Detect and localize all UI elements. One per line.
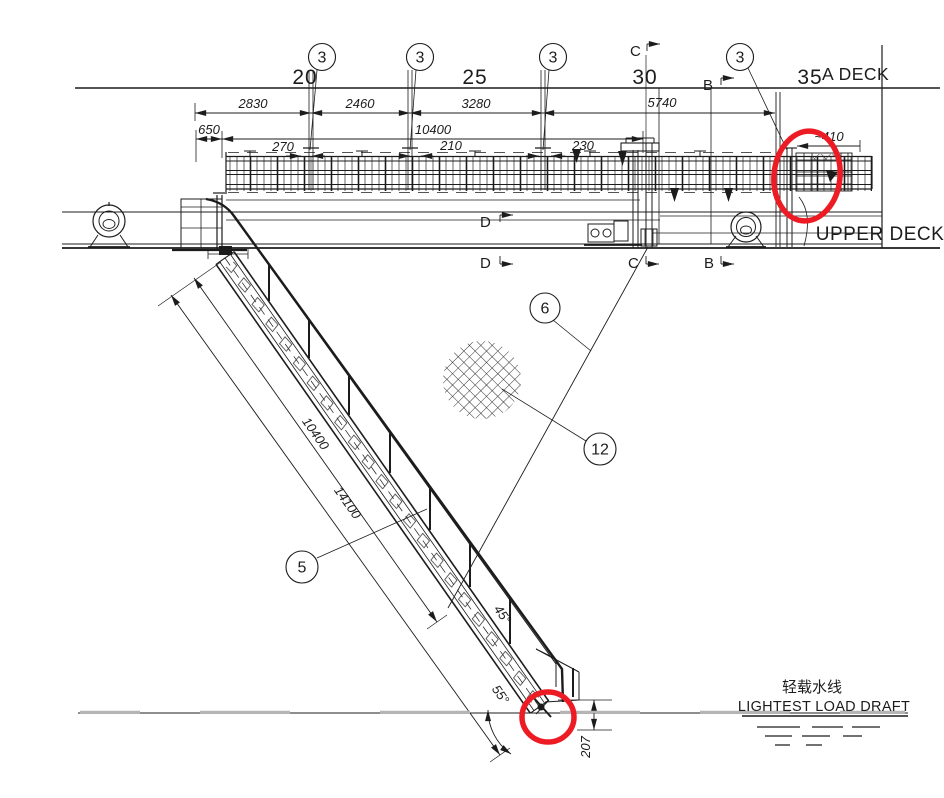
frame-30: 30 bbox=[632, 66, 657, 89]
dim-10400-top: 10400 bbox=[415, 122, 452, 137]
section-b-bottom: B bbox=[704, 255, 714, 272]
dim-14100: 14100 bbox=[331, 483, 364, 522]
balloon-5-label: 5 bbox=[298, 560, 307, 577]
frame-20: 20 bbox=[292, 66, 317, 89]
dim-5740: 5740 bbox=[648, 95, 678, 110]
dim-270: 270 bbox=[271, 139, 294, 154]
dim-207: 207 bbox=[578, 735, 593, 758]
hoist-davit bbox=[572, 138, 733, 248]
roller-chock-right bbox=[726, 212, 766, 247]
section-d-bottom: D bbox=[480, 255, 491, 272]
ladder-stanchions bbox=[269, 265, 510, 644]
balloon-3-4-label: 3 bbox=[736, 50, 745, 67]
balloon-6-label: 6 bbox=[541, 301, 550, 318]
section-d-top: D bbox=[480, 214, 491, 231]
frame-35: 35 bbox=[797, 66, 822, 89]
dim-650: 650 bbox=[198, 122, 220, 137]
dim-angle-55: 55° bbox=[489, 682, 513, 707]
dim-2460: 2460 bbox=[345, 96, 376, 111]
upper-deck-label: UPPER DECK bbox=[816, 224, 944, 245]
ladder-handrail-far bbox=[242, 228, 556, 664]
gangway-head-platform bbox=[172, 193, 248, 259]
top-dimensions: 2830 2460 3280 5740 650 10400 270 210 23… bbox=[195, 95, 860, 162]
balloon-callouts: 3 3 3 3 6 12 5 bbox=[286, 44, 787, 584]
balloon-3-2-label: 3 bbox=[416, 50, 425, 67]
balloon-3-3-label: 3 bbox=[549, 50, 558, 67]
dim-210: 210 bbox=[439, 138, 462, 153]
water-ripples-icon bbox=[757, 727, 880, 745]
accommodation-ladder-drawing: 2830 2460 3280 5740 650 10400 270 210 23… bbox=[0, 0, 944, 793]
waterline-label-zh: 轻载水线 bbox=[782, 679, 842, 696]
dim-230: 230 bbox=[571, 138, 594, 153]
dim-3280: 3280 bbox=[462, 96, 492, 111]
section-b-top: B bbox=[703, 77, 713, 94]
dim-2830: 2830 bbox=[238, 96, 269, 111]
frame-25: 25 bbox=[462, 66, 487, 89]
balloon-3-1-label: 3 bbox=[318, 50, 327, 67]
ladder-dimensions: 10400 14100 55° 45° 207 bbox=[158, 262, 612, 762]
section-c-bottom: C bbox=[628, 255, 639, 272]
a-deck-label: A DECK bbox=[822, 64, 889, 84]
section-c-top: C bbox=[630, 43, 641, 60]
balloon-12-label: 12 bbox=[591, 442, 609, 459]
drawing-canvas: 2830 2460 3280 5740 650 10400 270 210 23… bbox=[0, 0, 944, 793]
inclined-ladder bbox=[206, 199, 579, 717]
waterline-label-en: LIGHTEST LOAD DRAFT bbox=[738, 699, 910, 715]
roller-chock-left bbox=[88, 202, 130, 247]
detail-hatch-area bbox=[443, 341, 521, 419]
